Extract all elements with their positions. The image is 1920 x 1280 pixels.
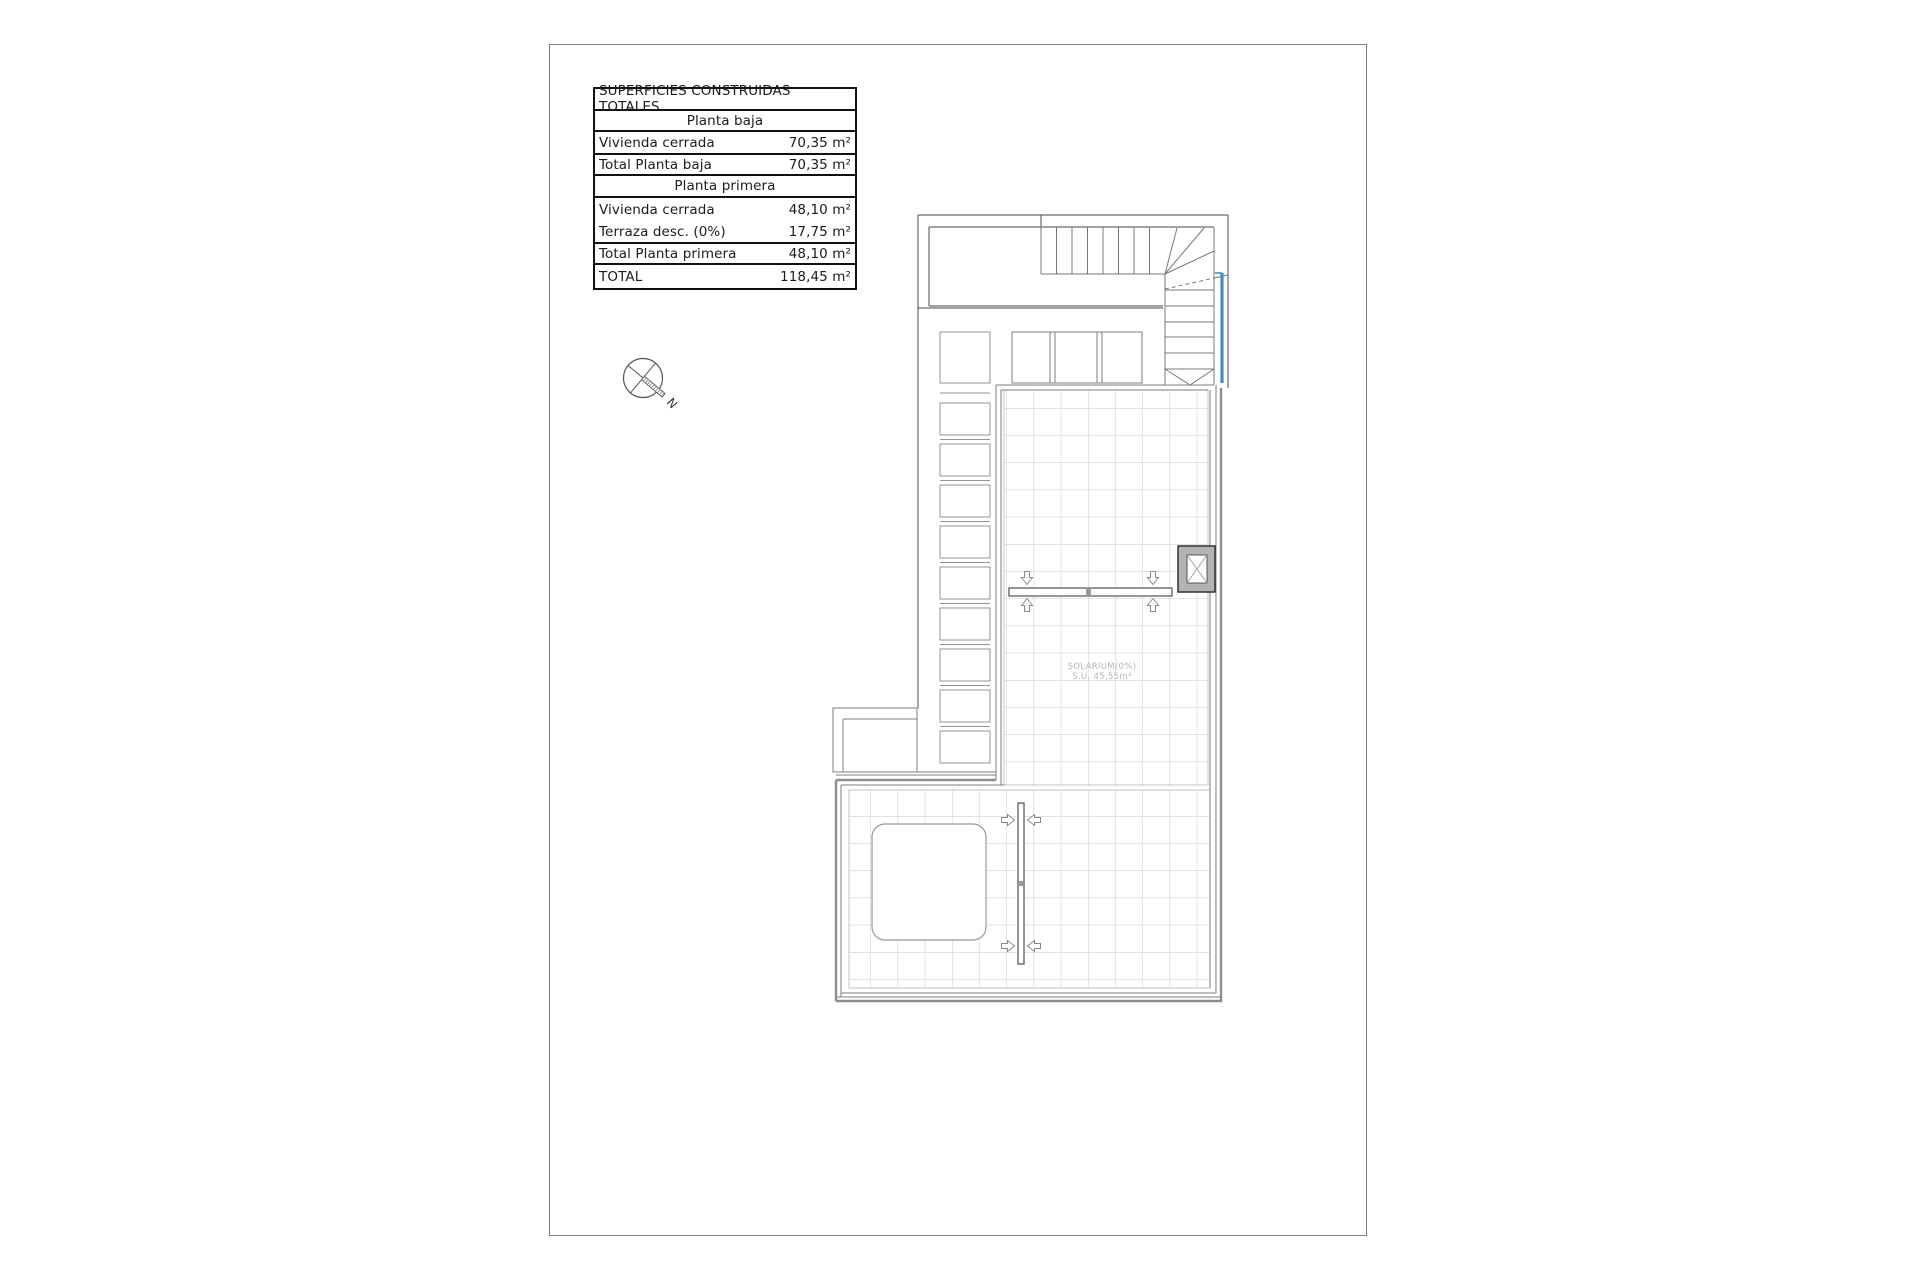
area-summary-table: SUPERFICIES CONSTRUIDAS TOTALES Planta b… [593, 87, 857, 290]
table-row-total: TOTAL 118,45 m² [593, 263, 857, 290]
table-row-vivienda-terraza-p1: Vivienda cerrada 48,10 m² Terraza desc. … [593, 196, 857, 244]
ac-unit [1178, 546, 1215, 592]
table-title: SUPERFICIES CONSTRUIDAS TOTALES [593, 87, 857, 111]
svg-text:SOLARIUM(0%): SOLARIUM(0%) [1068, 662, 1137, 672]
left-bay [833, 708, 996, 775]
pergola-slats [940, 332, 990, 763]
table-row-section-planta-primera: Planta primera [593, 174, 857, 198]
compass-icon: N [615, 350, 685, 422]
floor-plan: SOLARIUM(0%) S.U. 45,55m² [820, 205, 1240, 1020]
table-row-total-planta-baja: Total Planta baja 70,35 m² [593, 153, 857, 176]
highlighted-glass-edge [1215, 273, 1222, 383]
table-row-total-planta-primera: Total Planta primera 48,10 m² [593, 242, 857, 265]
table-title-text: SUPERFICIES CONSTRUIDAS TOTALES [599, 83, 851, 115]
page-background: SUPERFICIES CONSTRUIDAS TOTALES Planta b… [0, 0, 1920, 1280]
table-row-vivienda-cerrada-pb: Vivienda cerrada 70,35 m² [593, 130, 857, 155]
solarium-label: SOLARIUM(0%) S.U. 45,55m² [1068, 662, 1137, 682]
jacuzzi [872, 824, 986, 940]
svg-text:S.U. 45,55m²: S.U. 45,55m² [1072, 672, 1131, 682]
north-label: N [664, 395, 680, 411]
storage-units [1012, 332, 1142, 383]
